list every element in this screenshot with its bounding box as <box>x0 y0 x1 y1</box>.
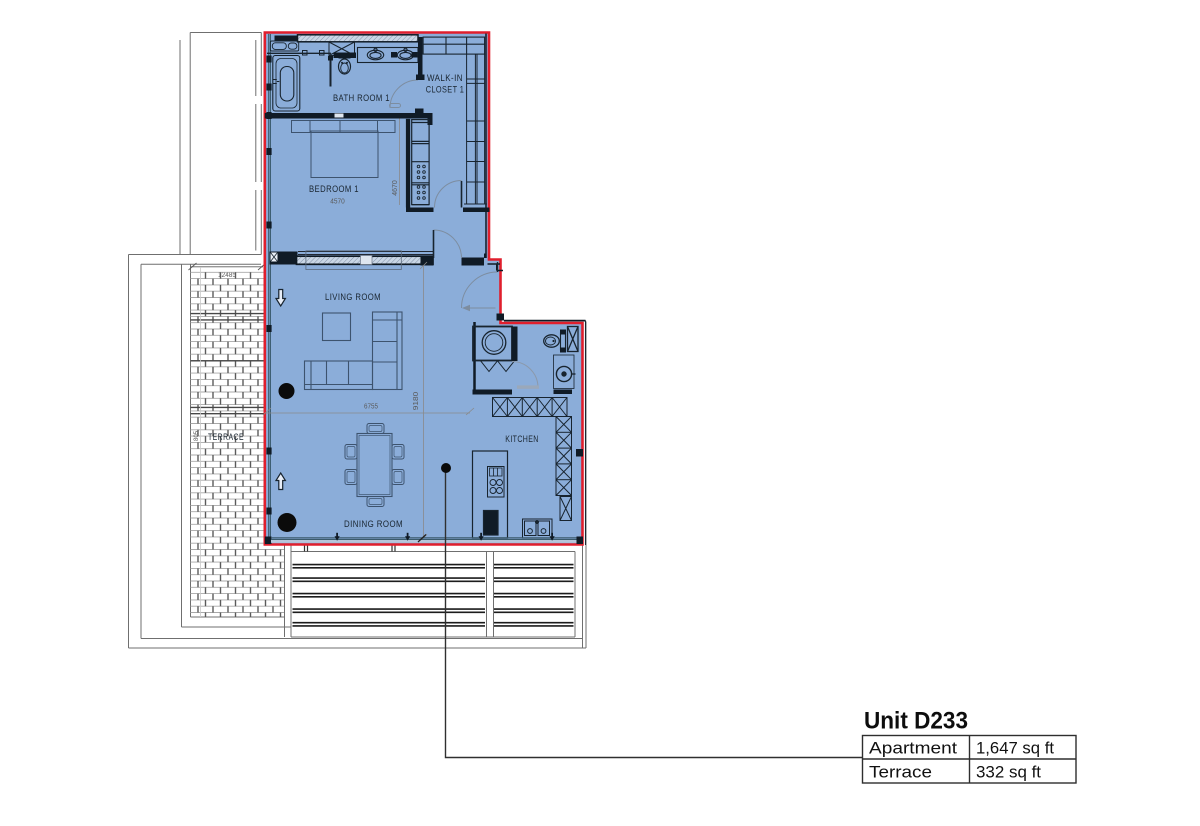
svg-text:CLOSET 1: CLOSET 1 <box>426 85 465 95</box>
svg-text:Apartment: Apartment <box>869 740 957 758</box>
svg-text:DINING ROOM: DINING ROOM <box>344 519 403 529</box>
svg-text:KITCHEN: KITCHEN <box>505 434 539 444</box>
svg-text:332 sq ft: 332 sq ft <box>976 764 1041 782</box>
svg-text:4670: 4670 <box>392 180 399 196</box>
svg-text:1,647 sq ft: 1,647 sq ft <box>976 740 1054 758</box>
svg-text:TERRACE: TERRACE <box>208 432 244 442</box>
svg-text:4570: 4570 <box>330 199 345 206</box>
svg-text:BATH ROOM 1: BATH ROOM 1 <box>333 93 390 103</box>
svg-text:LIVING ROOM: LIVING ROOM <box>325 292 381 302</box>
svg-text:WALK-IN: WALK-IN <box>427 73 463 83</box>
svg-text:805: 805 <box>194 430 200 441</box>
svg-text:Terrace: Terrace <box>869 764 932 782</box>
svg-text:9180: 9180 <box>411 392 420 411</box>
svg-text:6755: 6755 <box>364 402 378 411</box>
svg-text:BEDROOM 1: BEDROOM 1 <box>309 184 359 194</box>
svg-text:Unit D233: Unit D233 <box>864 708 968 735</box>
